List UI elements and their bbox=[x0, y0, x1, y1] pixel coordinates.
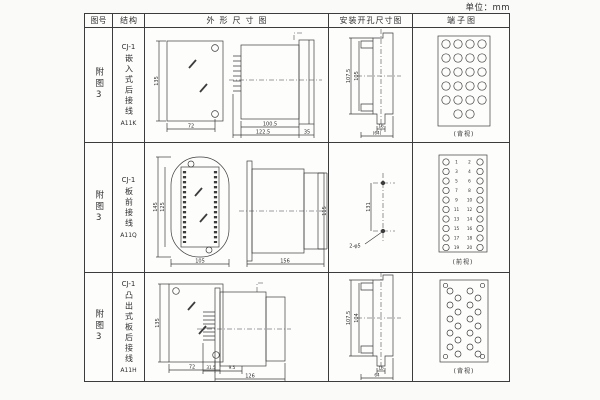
row1-code: A11K bbox=[121, 120, 137, 127]
row1-terminal-diagram: (背视) bbox=[414, 28, 509, 142]
row2-install-cell: 131 2-φ5 bbox=[329, 143, 413, 273]
view-caption: (前视) bbox=[452, 258, 473, 266]
row2-outline-drawing: 145 125 105 156 115 bbox=[145, 143, 328, 272]
row2-code: A11Q bbox=[120, 232, 136, 239]
dimension-table: 图号 结构 外形尺寸图 安装开孔尺寸图 端子图 附图3 CJ-1 嵌入式后接线 … bbox=[84, 13, 510, 382]
svg-text:14: 14 bbox=[466, 217, 472, 222]
hole-spec-label: 2-φ5 bbox=[349, 244, 360, 250]
dim-label: 115 bbox=[322, 206, 328, 216]
row1-outline-cell: 135 72 100.5 122.5 35 bbox=[145, 28, 329, 143]
row3-code: A11H bbox=[120, 367, 136, 374]
dim-label: (64) bbox=[373, 131, 382, 136]
row1-model: CJ-1 bbox=[122, 43, 136, 51]
dim-label: 31.5 bbox=[206, 365, 216, 370]
col-header-fig-no: 图号 bbox=[85, 14, 113, 28]
row3-terminal-diagram: (背视) bbox=[414, 273, 509, 381]
dim-label: 126 bbox=[245, 373, 255, 379]
row2-outline-cell: 145 125 105 156 115 bbox=[145, 143, 329, 273]
dim-label: 105 bbox=[354, 71, 360, 81]
dim-label: 107.5 bbox=[346, 69, 352, 83]
svg-text:6: 6 bbox=[468, 179, 471, 184]
col-header-structure: 结构 bbox=[113, 14, 145, 28]
row1-outline-drawing: 135 72 100.5 122.5 35 bbox=[145, 28, 328, 142]
view-caption: (背视) bbox=[453, 367, 474, 375]
row1-install-cell: 107.5 105 16 (64) bbox=[329, 28, 413, 143]
relay-dimension-sheet: 单位：mm 图号 结构 外形尺寸图 安装开孔尺寸图 端子图 附图3 CJ-1 嵌… bbox=[0, 0, 600, 400]
terminal-pins bbox=[442, 159, 482, 251]
svg-text:17: 17 bbox=[453, 236, 459, 241]
svg-text:10: 10 bbox=[466, 198, 472, 203]
row2-model: CJ-1 bbox=[122, 176, 136, 184]
svg-text:9: 9 bbox=[455, 198, 458, 203]
row1-structure-cell: CJ-1 嵌入式后接线 A11K bbox=[113, 28, 145, 143]
row3-fig-no-cell: 附图3 bbox=[85, 273, 113, 381]
svg-text:20: 20 bbox=[466, 245, 472, 250]
unit-label: 单位：mm bbox=[430, 1, 510, 13]
svg-text:7: 7 bbox=[455, 188, 458, 193]
col-header-install: 安装开孔尺寸图 bbox=[329, 14, 413, 28]
dim-label: 135 bbox=[155, 318, 161, 328]
col-header-outline: 外形尺寸图 bbox=[145, 14, 329, 28]
svg-text:11: 11 bbox=[453, 207, 459, 212]
dim-label: 72 bbox=[189, 364, 195, 370]
row3-install-cell: 107.5 104 16 64 bbox=[329, 273, 413, 381]
dim-label: 131 bbox=[366, 202, 372, 212]
row3-fig-no: 附图3 bbox=[94, 309, 103, 345]
row2-fig-no: 附图3 bbox=[94, 190, 103, 226]
dim-label: 105 bbox=[195, 259, 205, 265]
svg-text:1: 1 bbox=[455, 160, 458, 165]
row3-outline-drawing: 135 72 31.5 9.5 126 bbox=[145, 273, 328, 381]
dim-label: 145 bbox=[153, 202, 159, 212]
row2-structure-cell: CJ-1 板前接线 A11Q bbox=[113, 143, 145, 273]
row2-terminal-cell: 12 34 56 78 910 1112 1314 1516 1718 1920… bbox=[413, 143, 509, 273]
dim-label: 16 bbox=[378, 124, 384, 129]
row1-fig-no: 附图3 bbox=[94, 67, 103, 103]
svg-text:13: 13 bbox=[453, 217, 459, 222]
row1-structure: 嵌入式后接线 bbox=[125, 54, 133, 117]
svg-text:3: 3 bbox=[455, 169, 458, 174]
row1-install-drawing: 107.5 105 16 (64) bbox=[329, 28, 412, 142]
svg-text:18: 18 bbox=[466, 236, 472, 241]
dim-label: 16 bbox=[378, 365, 384, 370]
row2-fig-no-cell: 附图3 bbox=[85, 143, 113, 273]
row1-terminal-cell: (背视) bbox=[413, 28, 509, 143]
dim-label: 100.5 bbox=[263, 122, 277, 128]
row3-structure: 凸出式板后接线 bbox=[125, 291, 133, 365]
terminal-pins bbox=[441, 40, 485, 118]
terminal-numbers: 12 34 56 78 910 1112 1314 1516 1718 1920 bbox=[453, 160, 472, 251]
row2-install-drawing: 131 2-φ5 bbox=[329, 143, 412, 272]
dim-label: 9.5 bbox=[229, 365, 236, 370]
svg-text:2: 2 bbox=[468, 160, 471, 165]
svg-text:12: 12 bbox=[466, 207, 472, 212]
row1-fig-no-cell: 附图3 bbox=[85, 28, 113, 143]
dim-label: 156 bbox=[280, 259, 290, 265]
row2-terminal-diagram: 12 34 56 78 910 1112 1314 1516 1718 1920… bbox=[414, 143, 509, 272]
dim-label: 104 bbox=[354, 313, 360, 323]
row3-terminal-cell: (背视) bbox=[413, 273, 509, 381]
dim-label: 107.5 bbox=[346, 310, 352, 324]
row3-outline-cell: 135 72 31.5 9.5 126 bbox=[145, 273, 329, 381]
row2-structure: 板前接线 bbox=[125, 187, 133, 229]
view-caption: (背视) bbox=[453, 130, 474, 138]
dim-label: 64 bbox=[374, 372, 380, 377]
col-header-terminal: 端子图 bbox=[413, 14, 509, 28]
svg-text:4: 4 bbox=[468, 169, 471, 174]
row3-install-drawing: 107.5 104 16 64 bbox=[329, 273, 412, 381]
terminal-pins bbox=[447, 288, 481, 357]
svg-text:19: 19 bbox=[453, 245, 459, 250]
dim-label: 135 bbox=[154, 76, 160, 86]
row3-model: CJ-1 bbox=[122, 280, 136, 288]
svg-text:8: 8 bbox=[468, 188, 471, 193]
svg-text:5: 5 bbox=[455, 179, 458, 184]
svg-text:16: 16 bbox=[466, 226, 472, 231]
dim-label: 72 bbox=[188, 124, 194, 130]
svg-text:15: 15 bbox=[453, 226, 459, 231]
row3-structure-cell: CJ-1 凸出式板后接线 A11H bbox=[113, 273, 145, 381]
dim-label: 125 bbox=[160, 202, 166, 212]
dim-label: 122.5 bbox=[256, 130, 270, 136]
mounting-screws bbox=[443, 283, 484, 358]
dim-label: 35 bbox=[304, 130, 310, 136]
